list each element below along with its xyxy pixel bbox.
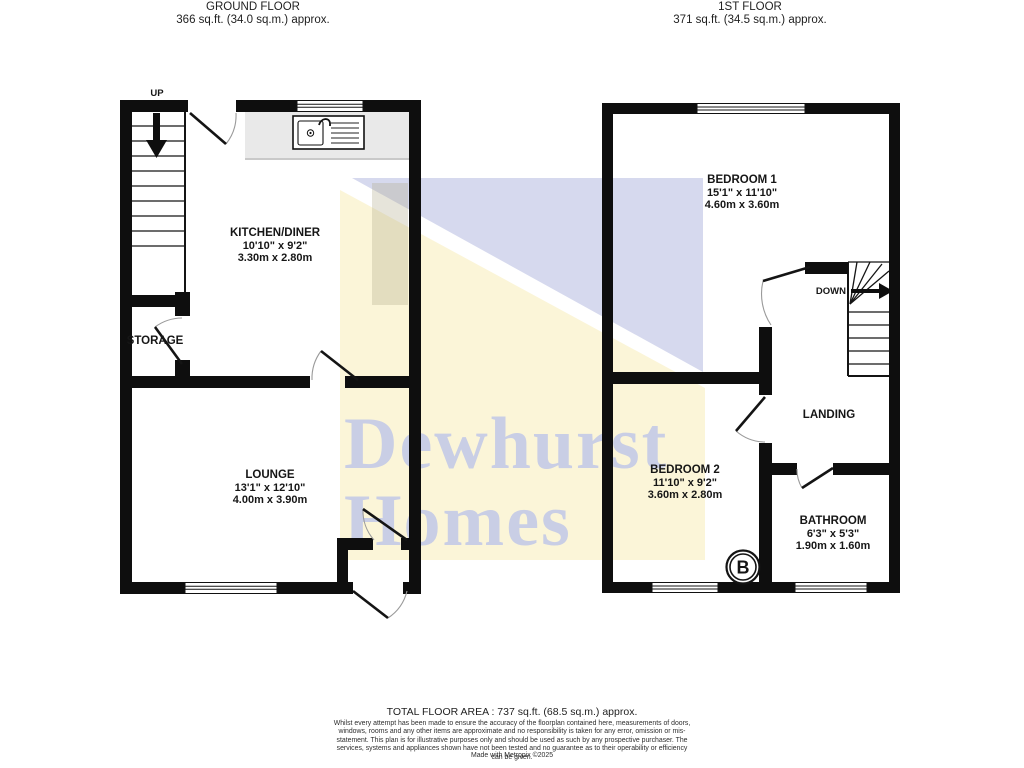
bedroom1-label: BEDROOM 1 15'1" x 11'10" 4.60m x 3.60m <box>705 174 780 211</box>
sink-unit <box>293 116 364 149</box>
room-dims-metric: 1.90m x 1.60m <box>796 540 871 552</box>
floorplan-svg: Dewhurst Homes <box>0 0 1024 768</box>
storage-label: STORAGE <box>127 335 184 347</box>
stairs-down-label: DOWN <box>816 286 846 297</box>
stairs-up-label: UP <box>150 88 164 99</box>
window <box>795 583 867 593</box>
room-name: BEDROOM 1 <box>707 174 777 186</box>
door-swing <box>353 591 407 618</box>
room-dims-metric: 4.00m x 3.90m <box>233 494 308 506</box>
room-name: BATHROOM <box>800 515 867 527</box>
room-dims-imperial: 6'3" x 5'3" <box>807 528 859 540</box>
watermark-word-1: Dewhurst <box>344 403 668 485</box>
room-dims-metric: 3.30m x 2.80m <box>238 252 313 264</box>
bedroom2-label: BEDROOM 2 11'10" x 9'2" 3.60m x 2.80m <box>648 464 723 501</box>
room-name: KITCHEN/DINER <box>230 227 321 239</box>
kitchen-counter <box>245 112 410 160</box>
room-dims-imperial: 11'10" x 9'2" <box>653 477 717 489</box>
credit-text: Made with Metropix ©2025 <box>332 752 692 759</box>
window <box>185 583 277 594</box>
landing-label: LANDING <box>803 409 855 421</box>
window <box>297 101 363 112</box>
boiler-badge: B <box>727 551 760 584</box>
kitchen-label: KITCHEN/DINER 10'10" x 9'2" 3.30m x 2.80… <box>230 227 321 264</box>
room-name: BEDROOM 2 <box>650 464 720 476</box>
watermark: Dewhurst Homes <box>340 178 705 562</box>
room-dims-imperial: 13'1" x 12'10" <box>235 482 306 494</box>
room-dims-metric: 4.60m x 3.60m <box>705 199 780 211</box>
floorplan-page: GROUND FLOOR 366 sq.ft. (34.0 sq.m.) app… <box>0 0 1024 768</box>
total-floor-area: TOTAL FLOOR AREA : 737 sq.ft. (68.5 sq.m… <box>312 706 712 718</box>
watermark-chimney <box>372 183 408 305</box>
room-dims-metric: 3.60m x 2.80m <box>648 489 723 501</box>
room-name: LOUNGE <box>245 469 295 481</box>
room-dims-imperial: 10'10" x 9'2" <box>243 240 308 252</box>
window <box>697 104 805 114</box>
up-arrow-shaft <box>153 113 160 141</box>
room-dims-imperial: 15'1" x 11'10" <box>707 187 777 199</box>
boiler-letter: B <box>737 558 750 578</box>
window <box>652 583 718 593</box>
